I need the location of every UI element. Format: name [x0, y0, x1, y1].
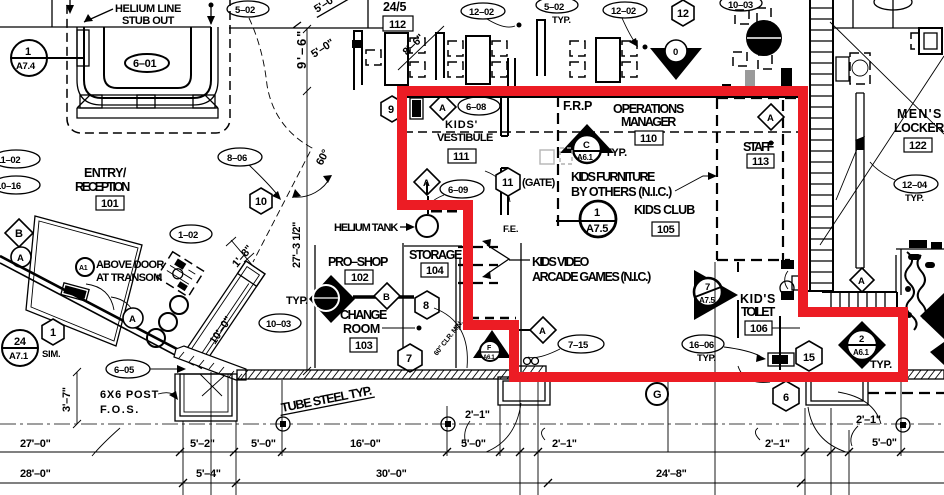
- svg-text:15: 15: [803, 352, 815, 364]
- svg-text:7–15: 7–15: [568, 340, 589, 351]
- svg-text:6–09: 6–09: [448, 185, 468, 196]
- svg-text:24/5: 24/5: [383, 0, 406, 14]
- svg-text:24'–8": 24'–8": [656, 468, 687, 480]
- svg-text:106: 106: [750, 323, 768, 335]
- svg-text:TYP.: TYP.: [697, 353, 716, 364]
- svg-text:C: C: [583, 140, 590, 151]
- svg-text:A: A: [129, 314, 136, 325]
- svg-text:MANAGER: MANAGER: [621, 115, 676, 129]
- svg-text:10: 10: [757, 28, 766, 37]
- svg-text:10: 10: [255, 196, 267, 208]
- svg-text:5'–0": 5'–0": [251, 438, 276, 450]
- svg-text:8–06: 8–06: [227, 153, 247, 164]
- svg-text:28'–0": 28'–0": [20, 468, 51, 480]
- svg-text:2'–1": 2'–1": [856, 414, 881, 426]
- svg-text:6–05: 6–05: [114, 365, 135, 376]
- svg-text:102: 102: [351, 272, 369, 284]
- svg-text:10–16: 10–16: [0, 181, 21, 192]
- svg-text:10–03: 10–03: [266, 319, 291, 330]
- svg-text:KID'S: KID'S: [740, 292, 775, 306]
- svg-text:5'–4": 5'–4": [196, 468, 221, 480]
- svg-text:ABOVE DOOR: ABOVE DOOR: [96, 259, 164, 271]
- svg-text:122: 122: [909, 140, 927, 152]
- svg-text:113: 113: [752, 156, 769, 168]
- svg-text:SIM.: SIM.: [42, 349, 60, 360]
- svg-text:5–02: 5–02: [544, 2, 564, 13]
- svg-text:G: G: [653, 389, 661, 401]
- svg-text:2: 2: [859, 334, 864, 345]
- svg-text:24: 24: [14, 336, 27, 348]
- svg-text:PRO–SHOP: PRO–SHOP: [328, 255, 388, 269]
- svg-text:6: 6: [783, 392, 789, 404]
- svg-text:MEN'S: MEN'S: [897, 107, 941, 121]
- svg-text:A6.1: A6.1: [483, 355, 495, 361]
- svg-text:7: 7: [705, 282, 710, 293]
- svg-text:F.R.P: F.R.P: [563, 99, 592, 113]
- svg-text:KIDS FURNITURE: KIDS FURNITURE: [571, 170, 655, 184]
- svg-text:A7.1: A7.1: [9, 351, 29, 362]
- svg-text:12–02: 12–02: [611, 6, 636, 17]
- svg-text:105: 105: [657, 224, 675, 236]
- svg-text:5'–0": 5'–0": [872, 437, 897, 449]
- svg-text:12–04: 12–04: [902, 180, 928, 191]
- svg-text:HELIUM TANK: HELIUM TANK: [334, 222, 398, 234]
- svg-text:6–01: 6–01: [133, 58, 156, 70]
- svg-text:104: 104: [426, 265, 445, 277]
- svg-text:A: A: [439, 103, 446, 114]
- svg-text:A7.2: A7.2: [754, 42, 768, 49]
- svg-text:103: 103: [355, 340, 373, 352]
- svg-text:2'–1": 2'–1": [465, 409, 490, 421]
- svg-text:TYP.: TYP.: [605, 147, 627, 159]
- svg-text:27'–0": 27'–0": [20, 438, 51, 450]
- svg-text:8: 8: [423, 300, 429, 312]
- svg-text:LOCKER: LOCKER: [894, 121, 944, 135]
- svg-text:A7.5: A7.5: [586, 223, 608, 235]
- svg-text:11–02: 11–02: [0, 155, 20, 166]
- svg-text:KIDS CLUB: KIDS CLUB: [634, 203, 695, 217]
- svg-text:A: A: [767, 113, 774, 124]
- svg-text:A6.1: A6.1: [853, 348, 870, 357]
- svg-text:12: 12: [677, 8, 689, 20]
- svg-text:KIDS VIDEO: KIDS VIDEO: [532, 255, 590, 269]
- svg-text:KIDS': KIDS': [445, 119, 478, 131]
- svg-text:A: A: [17, 253, 24, 264]
- svg-text:F.E.: F.E.: [503, 224, 518, 235]
- svg-text:ARCADE GAMES (N.I.C.): ARCADE GAMES (N.I.C.): [532, 270, 651, 284]
- svg-text:5'–2": 5'–2": [190, 438, 215, 450]
- svg-text:B: B: [15, 228, 23, 240]
- svg-text:OPERATIONS: OPERATIONS: [613, 102, 684, 116]
- svg-text:2'–1": 2'–1": [552, 438, 577, 450]
- svg-text:STUB OUT: STUB OUT: [122, 15, 175, 27]
- svg-text:(GATE): (GATE): [522, 177, 556, 189]
- svg-text:101: 101: [101, 198, 119, 210]
- svg-text:5–02: 5–02: [235, 5, 255, 16]
- svg-text:B: B: [383, 292, 390, 303]
- svg-text:12–02: 12–02: [469, 7, 494, 18]
- svg-text:A7.4: A7.4: [16, 61, 36, 72]
- svg-text:A6.1: A6.1: [577, 153, 594, 162]
- svg-text:ROOM: ROOM: [343, 322, 380, 336]
- svg-text:EXIT: EXIT: [415, 102, 421, 115]
- svg-text:STORAGE: STORAGE: [409, 248, 462, 262]
- svg-text:2'–1": 2'–1": [765, 438, 790, 450]
- svg-text:3'–7": 3'–7": [61, 387, 73, 412]
- svg-text:111: 111: [453, 151, 469, 163]
- svg-text:TYP.: TYP.: [552, 15, 571, 26]
- svg-text:TOILET: TOILET: [741, 305, 776, 319]
- svg-text:110: 110: [640, 133, 657, 145]
- svg-text:1: 1: [594, 207, 600, 219]
- svg-text:A1: A1: [79, 265, 88, 272]
- svg-text:TYP.: TYP.: [870, 359, 892, 371]
- svg-text:A6.1: A6.1: [317, 302, 331, 309]
- svg-text:TYP.: TYP.: [286, 295, 308, 307]
- svg-text:1: 1: [50, 327, 56, 339]
- svg-text:7: 7: [406, 353, 412, 365]
- svg-text:ENTRY/: ENTRY/: [84, 166, 127, 180]
- svg-text:112: 112: [389, 19, 406, 31]
- svg-text:16–06: 16–06: [689, 340, 714, 351]
- svg-text:AT TRANSOM: AT TRANSOM: [96, 272, 162, 284]
- svg-text:6–08: 6–08: [466, 102, 486, 113]
- svg-text:11: 11: [502, 177, 513, 189]
- svg-text:0: 0: [673, 47, 678, 58]
- svg-text:16'–0": 16'–0": [350, 438, 381, 450]
- svg-text:A7.5: A7.5: [699, 296, 716, 305]
- svg-text:CHANGE: CHANGE: [340, 308, 387, 322]
- svg-text:A6.1: A6.1: [668, 65, 680, 71]
- svg-text:TYP.: TYP.: [905, 193, 924, 204]
- svg-text:9: 9: [388, 104, 394, 116]
- svg-text:BY OTHERS (N.I.C.): BY OTHERS (N.I.C.): [571, 185, 672, 199]
- svg-text:VESTIBULE: VESTIBULE: [437, 132, 493, 144]
- svg-text:A: A: [539, 326, 546, 337]
- svg-text:A: A: [858, 276, 865, 287]
- svg-text:1–02: 1–02: [178, 230, 198, 241]
- svg-text:6X6 POST: 6X6 POST: [100, 389, 159, 401]
- svg-text:27'–3 1/2": 27'–3 1/2": [291, 222, 303, 268]
- svg-text:9'–6": 9'–6": [294, 31, 309, 69]
- svg-text:1: 1: [25, 46, 31, 58]
- svg-text:30'–0": 30'–0": [376, 468, 407, 480]
- svg-text:HELIUM LINE: HELIUM LINE: [115, 3, 181, 15]
- svg-text:RECEPTION: RECEPTION: [75, 180, 130, 194]
